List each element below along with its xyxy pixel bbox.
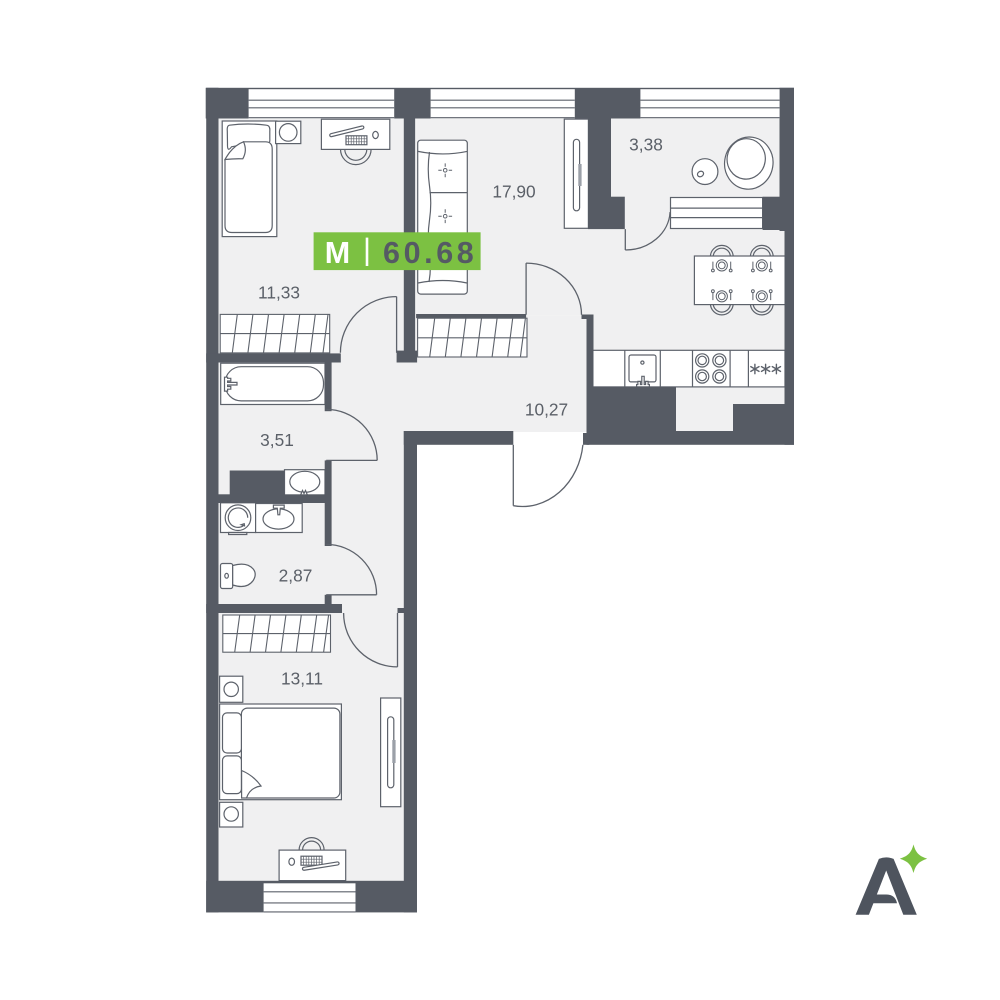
svg-text:3,51: 3,51 — [260, 430, 294, 450]
svg-text:3,38: 3,38 — [629, 135, 663, 155]
svg-text:11,33: 11,33 — [258, 283, 300, 303]
svg-text:2,87: 2,87 — [279, 566, 313, 586]
svg-text:M: M — [325, 236, 350, 270]
svg-text:10,27: 10,27 — [525, 400, 568, 420]
svg-text:13,11: 13,11 — [281, 668, 323, 688]
svg-text:17,90: 17,90 — [492, 182, 535, 202]
svg-text:60.68: 60.68 — [383, 236, 477, 270]
